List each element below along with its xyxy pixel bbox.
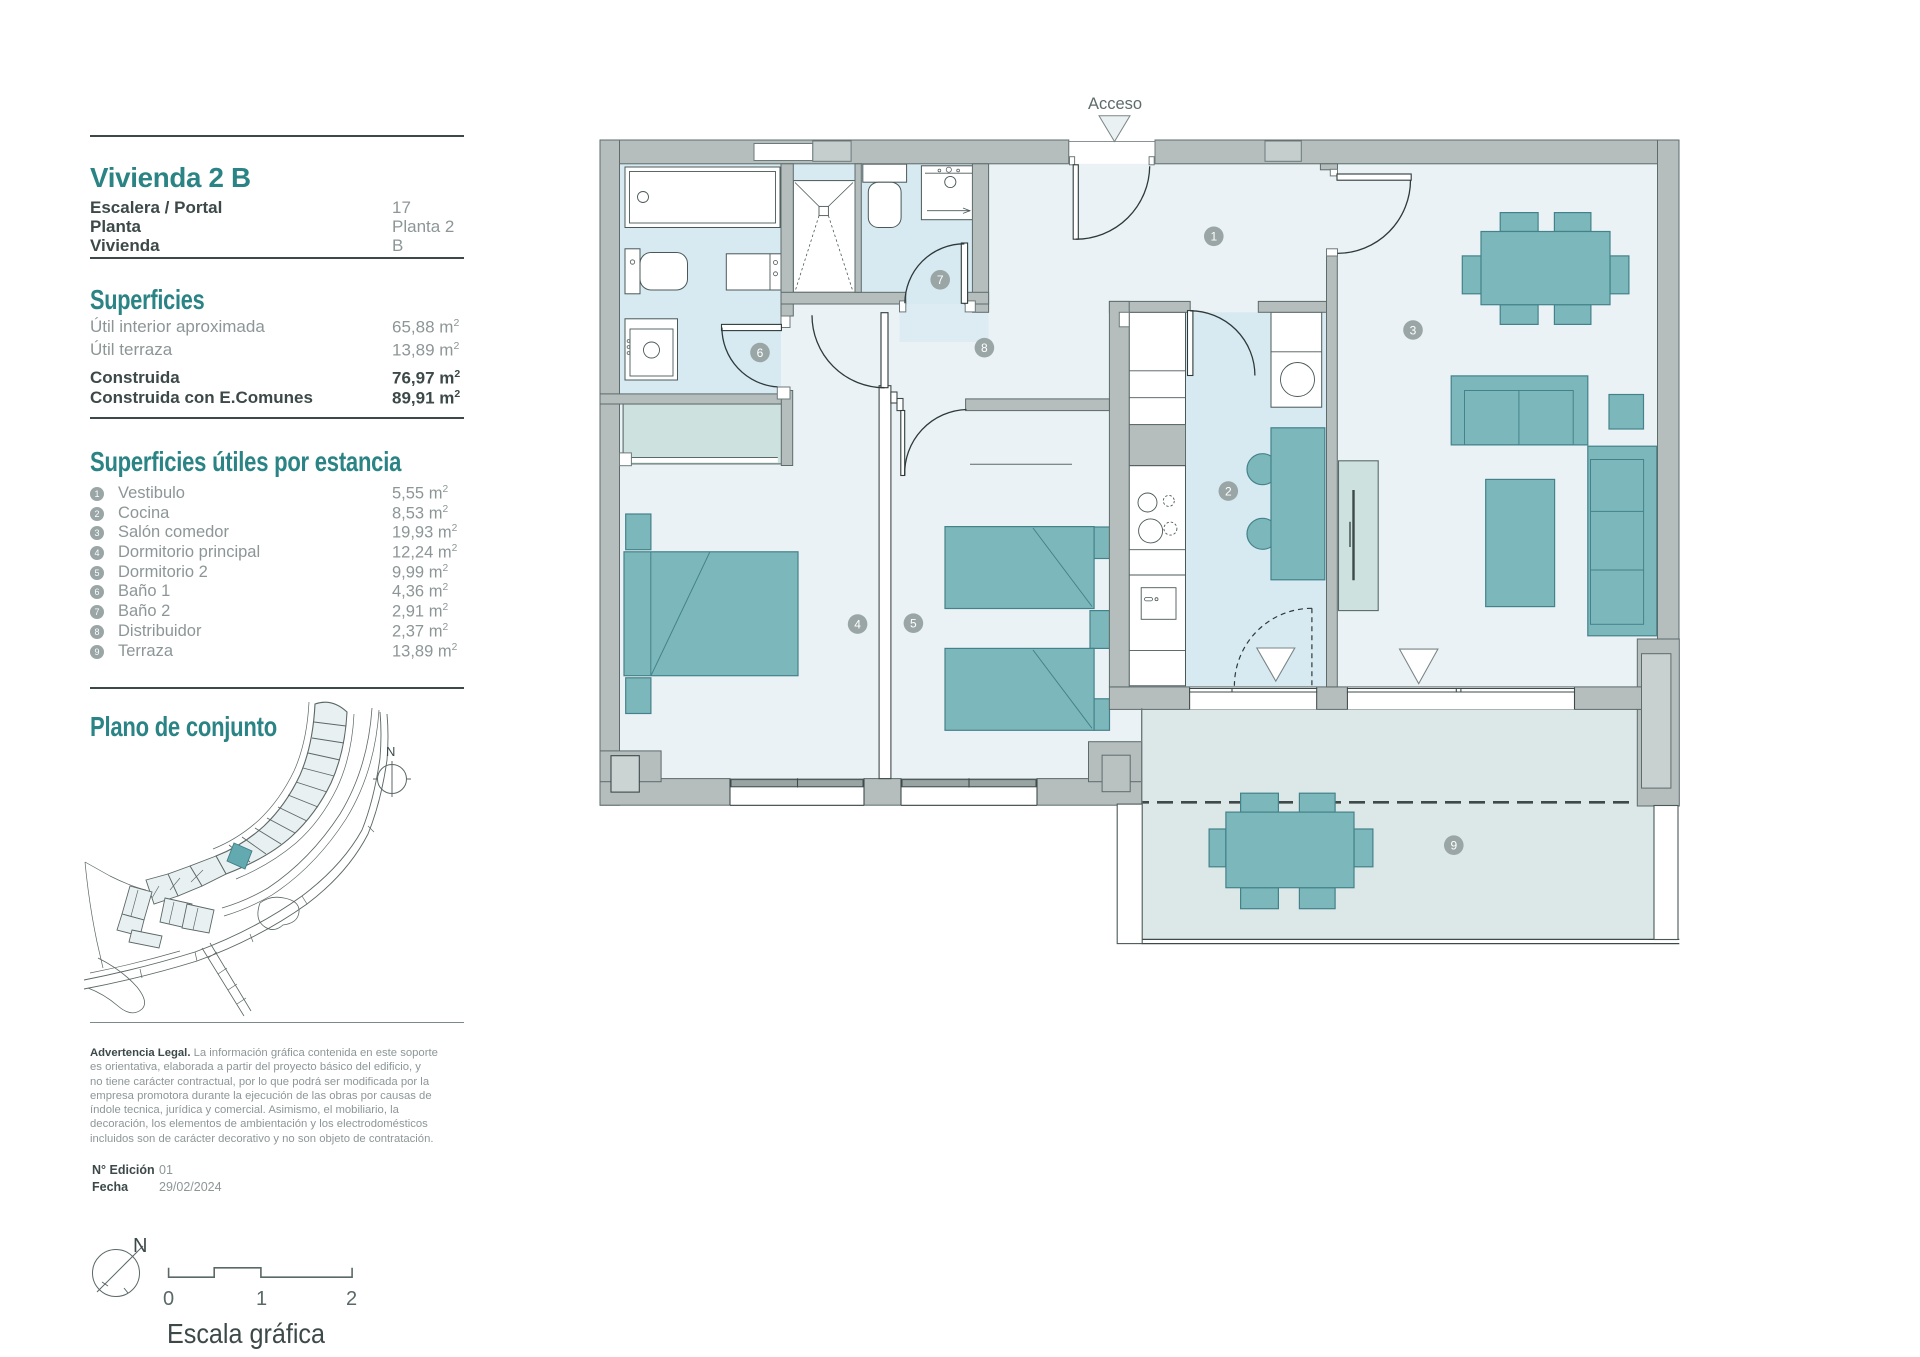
svg-text:Acceso: Acceso xyxy=(1088,95,1142,113)
svg-text:7: 7 xyxy=(937,273,944,287)
svg-text:6: 6 xyxy=(757,346,764,360)
svg-text:1: 1 xyxy=(1210,230,1217,244)
svg-text:3: 3 xyxy=(1410,323,1417,337)
svg-text:9: 9 xyxy=(1450,839,1457,853)
svg-text:5: 5 xyxy=(910,617,917,631)
svg-text:4: 4 xyxy=(854,617,861,631)
svg-text:2: 2 xyxy=(1225,484,1232,498)
svg-text:8: 8 xyxy=(981,341,988,355)
